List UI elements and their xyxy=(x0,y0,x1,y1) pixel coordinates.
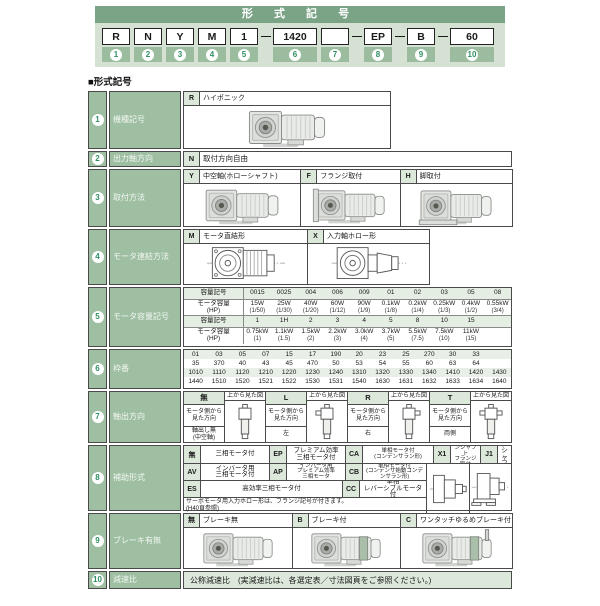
frame-number-cell: 1210 xyxy=(254,368,277,377)
capacity-cell: 2.2kW(3) xyxy=(324,328,351,344)
row-auxiliary-type: 8 補助形式 無三相モータ付EPプレミアム効率 三相モータ付CA単相モータ付 (… xyxy=(88,445,512,511)
shaft-direction-table: 無モータ側から 見た方向軸出し無 (中空軸)上から見た図Lモータ側から 見た方向… xyxy=(183,391,512,443)
row2-label: 出力軸方向 xyxy=(109,151,181,167)
capacity-kw: 7.5kW xyxy=(435,329,453,336)
capacity-kw: 1.5kW xyxy=(302,329,320,336)
capacity-cell: 0.75kW(1) xyxy=(244,328,271,344)
row9-number: 9 xyxy=(88,513,107,569)
code-group: Y3 xyxy=(166,28,194,62)
capacity-cell: 容量記号 xyxy=(184,316,244,328)
capacity-hp: (1/12) xyxy=(330,308,346,314)
top-view-label: 上から見た図 xyxy=(389,392,429,401)
code-group: 14206 xyxy=(273,28,317,62)
option-code: 無 xyxy=(184,514,200,527)
capacity-kw: 90W xyxy=(357,301,370,308)
code-group: 6010 xyxy=(450,28,494,62)
row-output-shaft-direction: 2 出力軸方向 N 取付方向自由 xyxy=(88,151,512,167)
frame-number-cell: 1410 xyxy=(441,368,464,377)
frame-number-cell: 1110 xyxy=(207,368,230,377)
code-box: M xyxy=(198,28,226,45)
capacity-kw: 5.5kW xyxy=(408,329,426,336)
code-box: 1420 xyxy=(273,28,317,45)
frame-number-cell: 53 xyxy=(348,359,371,368)
frame-number-cell: 40 xyxy=(231,359,254,368)
capacity-cell: 02 xyxy=(404,288,431,300)
capacity-cell: 0.25kW(1/3) xyxy=(431,300,458,316)
frame-number-cell: 1521 xyxy=(254,377,277,386)
frame-number-cell: 1540 xyxy=(348,377,371,386)
code-group: 15 xyxy=(230,28,258,62)
capacity-hp: (1.5) xyxy=(278,336,290,342)
capacity-cell: 006 xyxy=(324,288,351,300)
capacity-cell: 4 xyxy=(351,316,378,328)
capacity-cell: モータ容量 (HP) xyxy=(184,300,244,316)
capacity-cell: 05 xyxy=(458,288,485,300)
code-number-tile: 5 xyxy=(230,47,258,62)
option-box: Fフランジ取付 xyxy=(300,169,400,227)
capacity-hp: (2) xyxy=(307,336,314,342)
option-code: C xyxy=(401,514,417,527)
frame-number-cell: 1631 xyxy=(394,377,417,386)
capacity-cell: 7.5kW(10) xyxy=(431,328,458,344)
topview-no-shaft xyxy=(225,401,265,442)
capacity-cell: 60W(1/12) xyxy=(324,300,351,316)
view-from-motor-label: モータ側から 見た方向 xyxy=(184,405,224,427)
topview-right-shaft xyxy=(389,401,429,442)
row4-number: 4 xyxy=(88,229,107,285)
top-view-label: 上から見た図 xyxy=(471,392,511,401)
frame-number-cell: 30 xyxy=(441,350,464,359)
capacity-cell: 1.5kW(2) xyxy=(297,328,324,344)
capacity-hp: (1/2) xyxy=(465,308,477,314)
frame-number-cell: 470 xyxy=(301,359,324,368)
row-shaft-out-direction: 7 軸出方向 無モータ側から 見た方向軸出し無 (中空軸)上から見た図Lモータ側… xyxy=(88,391,512,443)
capacity-hp: (3/4) xyxy=(491,308,503,314)
plug-in-shaft-flange-drawing xyxy=(427,464,469,514)
capacity-cell: 8 xyxy=(404,316,431,328)
capacity-kw: 3.7kW xyxy=(382,329,400,336)
option-label: 中空軸(ホローシャフト) xyxy=(200,170,281,183)
circled-number: 3 xyxy=(92,192,104,204)
dash-separator: — xyxy=(438,28,448,46)
frame-number-cell: 1640 xyxy=(488,377,511,386)
option-label: ブレーキ無 xyxy=(200,514,241,527)
code-box: Y xyxy=(166,28,194,45)
auxiliary-code: X1 xyxy=(434,446,451,463)
foot-mount-photo xyxy=(401,184,512,226)
option-label: 脚取付 xyxy=(417,170,444,183)
frame-number-cell: 1340 xyxy=(418,368,441,377)
capacity-cell xyxy=(484,316,511,328)
capacity-hp: (10) xyxy=(439,336,450,342)
capacity-kw: 0.1kW xyxy=(382,301,400,308)
auxiliary-label: プレミアム効率 三相モータ付 xyxy=(287,446,346,463)
frame-number-cell: 05 xyxy=(231,350,254,359)
auxiliary-code: AP xyxy=(270,464,287,480)
brake-photo xyxy=(293,528,401,568)
brake-none-photo xyxy=(184,528,292,568)
capacity-cell: 0015 xyxy=(244,288,271,300)
option-box: Mモータ直結形 xyxy=(183,229,308,285)
direction-value: 軸出し無 (中空軸) xyxy=(184,427,224,442)
row-frame-number: 6 枠番 01030507151719020232527030333537040… xyxy=(88,349,512,389)
capacity-kw: 3.0kW xyxy=(355,329,373,336)
capacity-hp: (5) xyxy=(387,336,394,342)
frame-number-cell: 43 xyxy=(254,359,277,368)
capacity-cell: 0025 xyxy=(271,288,298,300)
option-code: Y xyxy=(184,170,200,183)
row1-number: 1 xyxy=(88,91,107,149)
auxiliary-label: 単相 レバーシブルモータ付 xyxy=(360,481,426,497)
motor-direct-drawing xyxy=(184,244,307,284)
option-label: ブレーキ付 xyxy=(309,514,350,527)
code-number-tile: 10 xyxy=(450,47,494,62)
code-group: B9 xyxy=(407,28,435,62)
capacity-hp: (1/20) xyxy=(303,308,319,314)
row3-number: 3 xyxy=(88,169,107,227)
row-motor-connection: 4 モータ連結方法 Mモータ直結形X入力軸ホロー形 xyxy=(88,229,512,285)
frame-number-cell: 1440 xyxy=(184,377,207,386)
option-box: X入力軸ホロー形 xyxy=(307,229,430,285)
auxiliary-label: プラグインシャフト 脚取付 xyxy=(498,446,511,463)
auxiliary-code: CB xyxy=(346,464,363,480)
frame-number-cell: 17 xyxy=(301,350,324,359)
capacity-cell: 5.5kW(7.5) xyxy=(404,328,431,344)
option-code: F xyxy=(301,170,317,183)
auxiliary-label: 三相モータ付 xyxy=(201,446,270,463)
option-label: モータ直結形 xyxy=(200,230,248,243)
row-brake: 9 ブレーキ有無 無ブレーキ無Bブレーキ付Cワンタッチゆるめブレーキ付 xyxy=(88,513,512,569)
frame-number-cell: 370 xyxy=(207,359,230,368)
row-reduction-ratio: 10 減速比 公称減速比 (実減速比は、各選定表／寸法図頁をご参照ください。) xyxy=(88,571,512,589)
auxiliary-label: 単相モータ付 (コンデンサラン形) xyxy=(363,446,434,463)
row6-label: 枠番 xyxy=(109,349,181,389)
code-number-tile: 2 xyxy=(134,47,162,62)
circled-number: 2 xyxy=(92,153,104,165)
frame-number-cell: 1240 xyxy=(324,368,347,377)
frame-number-cell: 54 xyxy=(371,359,394,368)
capacity-cell: 1 xyxy=(244,316,271,328)
row5-number: 5 xyxy=(88,287,107,347)
option-box: H脚取付 xyxy=(400,169,513,227)
capacity-cell: 5 xyxy=(378,316,405,328)
capacity-cell: 90W(1/9) xyxy=(351,300,378,316)
option-box: Bブレーキ付 xyxy=(292,513,402,569)
shaft-direction-option: 無モータ側から 見た方向軸出し無 (中空軸)上から見た図 xyxy=(184,392,266,442)
capacity-cell: 2 xyxy=(297,316,324,328)
input-hollow-drawing xyxy=(308,244,429,284)
frame-number-cell: 07 xyxy=(254,350,277,359)
frame-number-cell: 1634 xyxy=(464,377,487,386)
circled-number: 9 xyxy=(92,535,104,547)
capacity-kw: 25W xyxy=(277,301,290,308)
option-label: フランジ取付 xyxy=(317,170,365,183)
catalog-page: 形 式 記 号 R1N2Y3M415—142067—EP8—B9—6010 ■形… xyxy=(0,6,600,606)
frame-number-cell: 1530 xyxy=(301,377,324,386)
shaft-direction-option: Lモータ側から 見た方向左上から見た図 xyxy=(266,392,348,442)
view-from-motor-label: モータ側から 見た方向 xyxy=(430,405,470,427)
code-sequence: R1N2Y3M415—142067—EP8—B9—6010 xyxy=(95,23,505,67)
row10-number: 10 xyxy=(88,571,107,589)
row2-number: 2 xyxy=(88,151,107,167)
code-group: EP8 xyxy=(364,28,392,62)
auxiliary-code: J1 xyxy=(481,446,498,463)
row-motor-capacity: 5 モータ容量記号 容量記号00150025004006009010203050… xyxy=(88,287,512,347)
circled-number: 7 xyxy=(329,49,341,61)
code-group: R1 xyxy=(102,28,130,62)
capacity-cell: 0.2kW(1/4) xyxy=(404,300,431,316)
option-label: 取付方向自由 xyxy=(200,152,251,166)
code-number-tile: 4 xyxy=(198,47,226,62)
circled-number: 2 xyxy=(142,49,154,61)
row7-number: 7 xyxy=(88,391,107,443)
row-model-type: 1 機種記号 Rハイポニック xyxy=(88,91,512,149)
frame-number-cell: 63 xyxy=(441,359,464,368)
frame-number-cell: 01 xyxy=(184,350,207,359)
frame-number-cell: 15 xyxy=(277,350,300,359)
capacity-hp: (1/8) xyxy=(385,308,397,314)
row9-options: 無ブレーキ無Bブレーキ付Cワンタッチゆるめブレーキ付 xyxy=(183,513,512,569)
frame-number-cell: 1520 xyxy=(231,377,254,386)
circled-number: 8 xyxy=(372,49,384,61)
circled-number: 8 xyxy=(92,472,104,484)
capacity-cell: 11kW(15) xyxy=(458,328,485,344)
option-code: N xyxy=(184,152,200,166)
code-group: 7 xyxy=(321,28,349,62)
capacity-hp: (7.5) xyxy=(411,336,423,342)
shaft-direction-option: Tモータ側から 見た方向両側上から見た図 xyxy=(430,392,511,442)
frame-number-cell: 1632 xyxy=(418,377,441,386)
code-box: EP xyxy=(364,28,392,45)
circled-number: 6 xyxy=(289,49,301,61)
option-code: M xyxy=(184,230,200,243)
circled-number: 10 xyxy=(466,49,478,61)
code-number-tile: 9 xyxy=(407,47,435,62)
code-box: 1 xyxy=(230,28,258,45)
dash-separator: — xyxy=(261,28,271,46)
capacity-cell: 009 xyxy=(351,288,378,300)
capacity-cell: 01 xyxy=(378,288,405,300)
row4-options: Mモータ直結形X入力軸ホロー形 xyxy=(183,229,512,285)
top-view-label: 上から見た図 xyxy=(307,392,347,401)
option-code: 無 xyxy=(184,392,224,405)
dash-separator: — xyxy=(395,28,405,46)
code-number-tile: 3 xyxy=(166,47,194,62)
capacity-kw: 0.55kW xyxy=(487,301,509,308)
capacity-cell xyxy=(484,328,511,344)
row1-label: 機種記号 xyxy=(109,91,181,149)
row8-label: 補助形式 xyxy=(109,445,181,511)
frame-number-cell: 1630 xyxy=(371,377,394,386)
frame-number-cell: 60 xyxy=(418,359,441,368)
frame-number-cell: 20 xyxy=(348,350,371,359)
topview-left-shaft xyxy=(307,401,347,442)
code-box: B xyxy=(407,28,435,45)
row1-options: Rハイポニック xyxy=(183,91,512,149)
circled-number: 1 xyxy=(92,114,104,126)
capacity-table: 容量記号001500250040060090102030508モータ容量 (HP… xyxy=(183,287,512,347)
topview-both-shafts xyxy=(471,401,511,442)
capacity-cell: 08 xyxy=(484,288,511,300)
capacity-kw: 40W xyxy=(304,301,317,308)
capacity-kw: 2.2kW xyxy=(328,329,346,336)
capacity-hp: (4) xyxy=(360,336,367,342)
model-code-table: 1 機種記号 Rハイポニック 2 出力軸方向 N 取付方向自由 3 取付方法 Y… xyxy=(88,91,512,589)
code-box: N xyxy=(134,28,162,45)
circled-number: 5 xyxy=(238,49,250,61)
auxiliary-type-table: 無三相モータ付EPプレミアム効率 三相モータ付CA単相モータ付 (コンデンサラン… xyxy=(183,445,512,511)
code-group: M4 xyxy=(198,28,226,62)
option-box: Cワンタッチゆるめブレーキ付 xyxy=(400,513,513,569)
capacity-cell: 0.1kW(1/8) xyxy=(378,300,405,316)
frame-number-cell xyxy=(488,350,511,359)
option-code: L xyxy=(266,392,306,405)
auxiliary-code: ES xyxy=(184,481,201,497)
dash-separator: — xyxy=(352,28,362,46)
capacity-cell: 1H xyxy=(271,316,298,328)
circled-number: 7 xyxy=(92,411,104,423)
capacity-hp: (1/9) xyxy=(358,308,370,314)
banner-title: 形 式 記 号 xyxy=(95,6,505,23)
row4-label: モータ連結方法 xyxy=(109,229,181,285)
direction-value: 右 xyxy=(348,427,388,442)
row3-options: Y中空軸(ホローシャフト)Fフランジ取付H脚取付 xyxy=(183,169,512,227)
frame-number-cell: 50 xyxy=(324,359,347,368)
auxiliary-code: EP xyxy=(270,446,287,463)
option-box: 無ブレーキ無 xyxy=(183,513,293,569)
option-label: 入力軸ホロー形 xyxy=(324,230,379,243)
capacity-hp: (1) xyxy=(254,336,261,342)
capacity-cell: 25W(1/30) xyxy=(271,300,298,316)
frame-number-cell: 55 xyxy=(394,359,417,368)
model-code-header: 形 式 記 号 R1N2Y3M415—142067—EP8—B9—6010 xyxy=(95,6,505,67)
capacity-cell: 3 xyxy=(324,316,351,328)
frame-number-cell: 1310 xyxy=(348,368,371,377)
circled-number: 6 xyxy=(92,363,104,375)
capacity-cell: 容量記号 xyxy=(184,288,244,300)
frame-number-cell: 1531 xyxy=(324,377,347,386)
code-number-tile: 7 xyxy=(321,47,349,62)
frame-number-cell: 25 xyxy=(394,350,417,359)
option-box: Rハイポニック xyxy=(183,91,391,149)
row5-label: モータ容量記号 xyxy=(109,287,181,347)
view-from-motor-label: モータ側から 見た方向 xyxy=(348,405,388,427)
frame-number-cell: 03 xyxy=(207,350,230,359)
capacity-hp: (15) xyxy=(466,336,477,342)
row9-label: ブレーキ有無 xyxy=(109,513,181,569)
servo-note: サーボモータ用入力ホロー形は、フランジ記号が付きます。 (H40頁参照) xyxy=(184,498,426,514)
option-code: R xyxy=(184,92,200,105)
capacity-cell: 3.7kW(5) xyxy=(378,328,405,344)
capacity-hp: (1/3) xyxy=(438,308,450,314)
hollow-shaft-photo xyxy=(184,184,300,226)
frame-number-cell: 1120 xyxy=(231,368,254,377)
auxiliary-code: CC xyxy=(343,481,360,497)
frame-number-cell: 64 xyxy=(464,359,487,368)
code-box: 60 xyxy=(450,28,494,45)
capacity-cell: 03 xyxy=(431,288,458,300)
capacity-cell: 10 xyxy=(431,316,458,328)
capacity-cell: 40W(1/20) xyxy=(297,300,324,316)
frame-number-cell: 35 xyxy=(184,359,207,368)
capacity-cell: 0.4kW(1/2) xyxy=(458,300,485,316)
auxiliary-label: インバータ用 プレミアム効率 三相モータ xyxy=(287,464,346,480)
auxiliary-label: プラグインシャフト フランジ取付 xyxy=(451,446,481,463)
capacity-hp: (3) xyxy=(334,336,341,342)
option-code: B xyxy=(293,514,309,527)
top-view-label: 上から見た図 xyxy=(225,392,265,401)
frame-number-table: 0103050715171902023252703033353704043454… xyxy=(183,349,512,389)
flange-mount-photo xyxy=(301,184,399,226)
section-heading: ■形式記号 xyxy=(88,74,600,88)
option-label: ワンタッチゆるめブレーキ付 xyxy=(417,514,512,527)
circled-number: 10 xyxy=(92,574,104,586)
capacity-cell: 15W(1/50) xyxy=(244,300,271,316)
frame-number-cell: 1420 xyxy=(464,368,487,377)
frame-number-cell: 45 xyxy=(277,359,300,368)
capacity-hp: (1/50) xyxy=(250,308,266,314)
frame-number-cell: 190 xyxy=(324,350,347,359)
frame-number-cell: 1430 xyxy=(488,368,511,377)
direction-value: 左 xyxy=(266,427,306,442)
auxiliary-code: AV xyxy=(184,464,201,480)
auxiliary-label: 単相モータ付 (コンデンサ始動コンデンサラン形) xyxy=(363,464,426,480)
option-code: T xyxy=(430,392,470,405)
capacity-kw: 0.25kW xyxy=(433,301,455,308)
frame-number-cell: 1522 xyxy=(277,377,300,386)
auxiliary-code: 無 xyxy=(184,446,201,463)
capacity-kw: 0.4kW xyxy=(462,301,480,308)
code-box: R xyxy=(102,28,130,45)
frame-number-cell: 23 xyxy=(371,350,394,359)
frame-number-cell: 1220 xyxy=(277,368,300,377)
option-code: R xyxy=(348,392,388,405)
auxiliary-label: 高効率三相モータ付 xyxy=(201,481,343,497)
row7-label: 軸出方向 xyxy=(109,391,181,443)
circled-number: 4 xyxy=(206,49,218,61)
frame-number-cell: 1010 xyxy=(184,368,207,377)
capacity-hp: (1/4) xyxy=(411,308,423,314)
option-label: ハイポニック xyxy=(200,92,248,105)
frame-number-cell xyxy=(488,359,511,368)
row8-number: 8 xyxy=(88,445,107,511)
code-group: N2 xyxy=(134,28,162,62)
frame-number-cell: 1633 xyxy=(441,377,464,386)
capacity-kw: 60W xyxy=(331,301,344,308)
option-code: H xyxy=(401,170,417,183)
frame-number-cell: 1230 xyxy=(301,368,324,377)
frame-number-cell: 270 xyxy=(418,350,441,359)
circled-number: 3 xyxy=(174,49,186,61)
reduction-ratio-text: 公称減速比 (実減速比は、各選定表／寸法図頁をご参照ください。) xyxy=(183,571,512,589)
plug-in-shaft-foot-drawing xyxy=(469,464,512,514)
capacity-cell: 15 xyxy=(458,316,485,328)
direction-value: 両側 xyxy=(430,427,470,442)
circled-number: 1 xyxy=(110,49,122,61)
capacity-hp: (1/30) xyxy=(276,308,292,314)
capacity-kw: 11kW xyxy=(463,329,479,336)
frame-number-cell: 1330 xyxy=(394,368,417,377)
shaft-direction-option: Rモータ側から 見た方向右上から見た図 xyxy=(348,392,430,442)
capacity-cell: 3.0kW(4) xyxy=(351,328,378,344)
row2-option: N 取付方向自由 xyxy=(183,151,512,167)
code-number-tile: 6 xyxy=(273,47,317,62)
capacity-kw: 0.2kW xyxy=(408,301,426,308)
option-code: X xyxy=(308,230,324,243)
code-number-tile: 8 xyxy=(364,47,392,62)
capacity-cell: 0.55kW(3/4) xyxy=(484,300,511,316)
capacity-kw: 15W xyxy=(251,301,264,308)
